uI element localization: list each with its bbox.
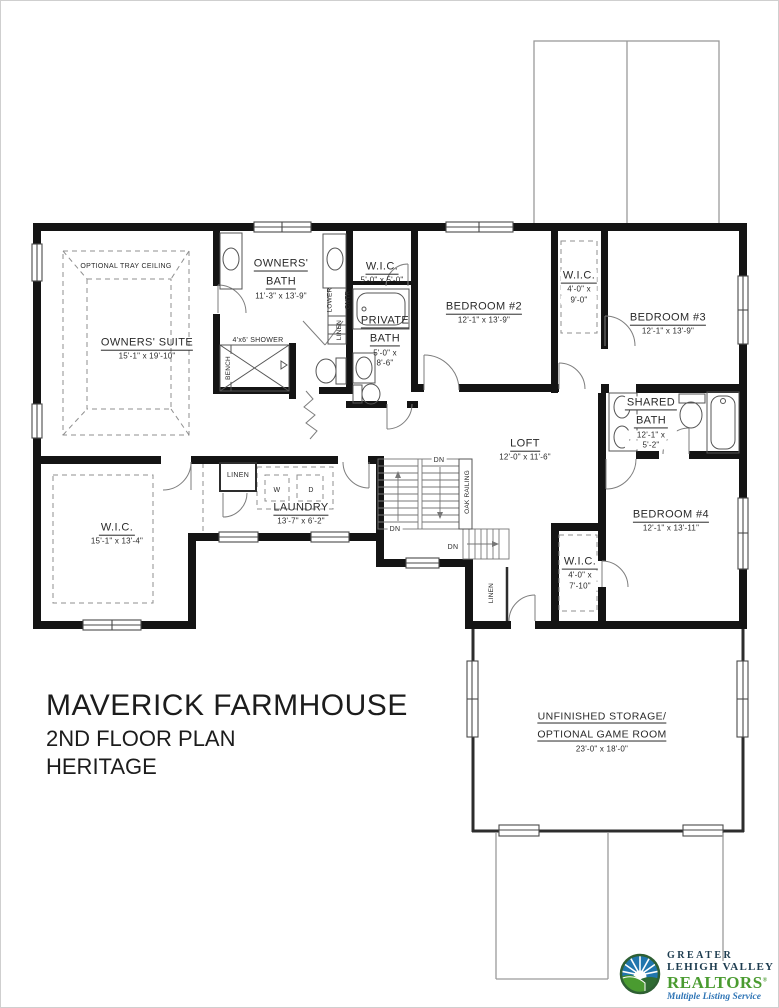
label-dryer: D xyxy=(308,479,313,497)
cased-opening-squiggle xyxy=(304,391,317,439)
label-linen-stairs: LINEN xyxy=(480,583,498,603)
label-owners-suite: OWNERS' SUITE 15'-1" x 19'-10" xyxy=(101,333,193,362)
floor-plan-page: OPTIONAL TRAY CEILING OWNERS' SUITE 15'-… xyxy=(0,0,779,1008)
plan-subtitle-elevation: HERITAGE xyxy=(46,754,408,780)
label-washer: W xyxy=(274,479,281,497)
label-laundry: LAUNDRY 13'-7" x 6'-2" xyxy=(273,498,328,527)
logo-line-lehigh-valley: LEHIGH VALLEY xyxy=(667,962,774,973)
tray-ceiling-text: OPTIONAL TRAY CEILING xyxy=(78,263,173,270)
label-bench: BENCH xyxy=(217,354,235,382)
glvr-logo-text: GREATER LEHIGH VALLEY REALTORS® Multiple… xyxy=(667,951,774,1003)
label-bedroom-3: BEDROOM #3 12'-1" x 13'-9" xyxy=(630,308,706,337)
label-wic-owners: W.I.C. 15'-1" x 13'-4" xyxy=(89,518,145,547)
logo-line-greater: GREATER xyxy=(667,951,774,961)
logo-line-realtors: REALTORS® xyxy=(667,974,774,991)
label-linen-bath: LINEN xyxy=(328,320,346,340)
label-wic-hall: W.I.C. 5'-0" x 5'-0" xyxy=(361,257,404,286)
label-optional-tray-ceiling: OPTIONAL TRAY CEILING xyxy=(78,255,173,273)
label-bedroom-4: BEDROOM #4 12'-1" x 13'-11" xyxy=(633,505,709,534)
label-wic-bed4: W.I.C. 4'-0" x 7'-10" xyxy=(562,552,598,591)
label-shower: 4'x6' SHOWER xyxy=(230,329,285,347)
glvr-logo-icon xyxy=(617,951,663,997)
label-linen-laundry: LINEN xyxy=(227,464,249,482)
label-dn-lower: DN xyxy=(446,536,461,554)
label-dn-left: DN xyxy=(388,518,403,536)
label-loft: LOFT 12'-0" x 11'-6" xyxy=(499,434,551,463)
title-block: MAVERICK FARMHOUSE 2ND FLOOR PLAN HERITA… xyxy=(46,689,408,780)
plan-subtitle-floor: 2ND FLOOR PLAN xyxy=(46,726,408,752)
upper-roof-outline xyxy=(534,41,719,227)
label-dn-top: DN xyxy=(432,449,447,467)
glvr-logo: GREATER LEHIGH VALLEY REALTORS® Multiple… xyxy=(617,951,774,1003)
label-private-bath: PRIVATE BATH 5'-0" x 8'-6" xyxy=(361,310,409,367)
registered-mark: ® xyxy=(763,977,768,983)
label-lower-cntr: LOWER CNTR xyxy=(319,288,356,313)
plan-title: MAVERICK FARMHOUSE xyxy=(46,689,408,723)
label-shared-bath: SHARED BATH 12'-1" x 5'-2" xyxy=(625,392,677,449)
label-oak-railing: OAK RAILING xyxy=(456,468,474,516)
label-wic-bed3: W.I.C. 4'-0" x 9'-0" xyxy=(561,266,597,305)
label-storage: UNFINISHED STORAGE/ OPTIONAL GAME ROOM 2… xyxy=(537,707,666,754)
logo-tagline: Multiple Listing Service xyxy=(667,993,774,1003)
label-bedroom-2: BEDROOM #2 12'-1" x 13'-9" xyxy=(446,297,522,326)
label-owners-bath: OWNERS' BATH 11'-3" x 13'-9" xyxy=(254,254,308,301)
